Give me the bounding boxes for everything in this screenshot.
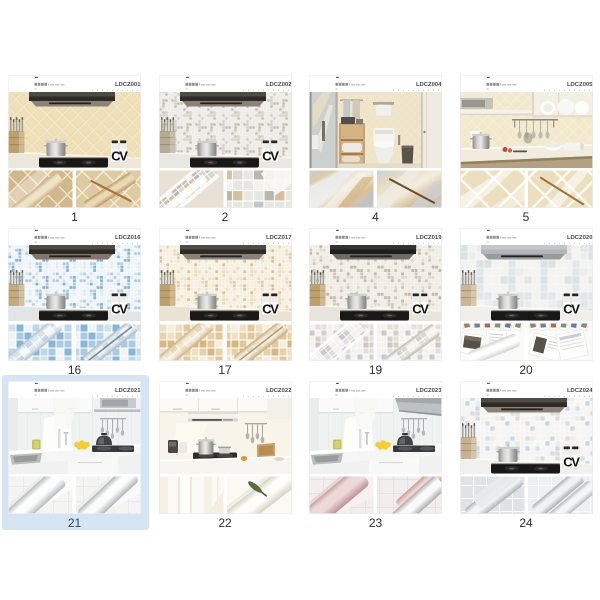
svg-text:CV: CV: [262, 148, 279, 163]
svg-text:CV: CV: [111, 148, 128, 163]
svg-text:LDCZ019: LDCZ019: [416, 235, 442, 241]
svg-text:LDCZ005: LDCZ005: [566, 82, 592, 88]
svg-text:CV: CV: [563, 301, 580, 316]
svg-text:LDCZ017: LDCZ017: [265, 235, 291, 241]
svg-text:LDCZ004: LDCZ004: [416, 82, 442, 88]
svg-text:CV: CV: [412, 301, 429, 316]
svg-text:LDCZ001: LDCZ001: [115, 82, 141, 88]
svg-text:LDCZ024: LDCZ024: [566, 388, 592, 394]
svg-text:CV: CV: [262, 301, 279, 316]
svg-text:LDCZ022: LDCZ022: [265, 388, 291, 394]
svg-text:CV: CV: [111, 301, 128, 316]
svg-text:LDCZ023: LDCZ023: [416, 388, 442, 394]
svg-text:LDCZ021: LDCZ021: [115, 388, 141, 394]
svg-text:LDCZ002: LDCZ002: [265, 82, 291, 88]
svg-text:LDCZ016: LDCZ016: [115, 235, 141, 241]
svg-text:LDCZ020: LDCZ020: [566, 235, 592, 241]
svg-text:CV: CV: [563, 454, 580, 469]
